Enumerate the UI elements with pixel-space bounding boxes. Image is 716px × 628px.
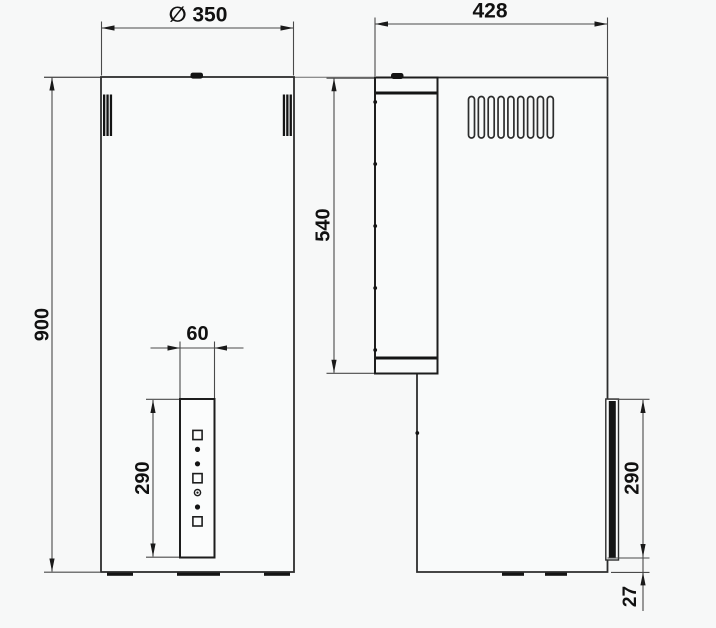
dim-panel-bottom-offset-label: 27 xyxy=(620,586,641,607)
dim-panel-width-label: 60 xyxy=(186,323,208,345)
top-cap-icon xyxy=(191,73,204,79)
side-control-panel xyxy=(606,399,619,560)
dim-side-depth-label: 428 xyxy=(472,0,507,23)
dim-duct-height-label: 540 xyxy=(313,208,335,241)
panel-button-dot-icon xyxy=(195,447,200,452)
panel-button-dot-icon xyxy=(195,461,200,466)
duct-screw-icon xyxy=(373,162,377,166)
mounting-bracket-right-icon xyxy=(283,95,292,137)
mounting-bracket-left-icon xyxy=(103,95,112,137)
dim-panel-bottom-offset: 27 xyxy=(611,557,650,611)
front-foot-pads xyxy=(107,573,290,576)
duct-top-cap-icon xyxy=(391,73,404,79)
panel-button-ring-center-icon xyxy=(196,492,198,494)
body-screw-icon xyxy=(415,431,419,435)
dim-front-width: ∅ 350 xyxy=(102,4,294,76)
side-foot-pads xyxy=(502,573,567,576)
panel-button-dot-icon xyxy=(195,504,200,509)
dim-front-width-label: ∅ 350 xyxy=(169,4,228,27)
side-view xyxy=(373,73,618,576)
dim-panel-height-side-label: 290 xyxy=(622,461,644,494)
technical-drawing: ∅ 350 900 60 290 xyxy=(0,0,716,628)
duct-screw-icon xyxy=(373,224,377,228)
dim-front-height: 900 xyxy=(32,77,101,572)
dim-duct-height: 540 xyxy=(313,78,375,373)
dim-panel-height-front-label: 290 xyxy=(132,461,154,494)
duct-box xyxy=(375,78,438,374)
duct-screw-icon xyxy=(373,348,377,352)
duct-screw-icon xyxy=(373,100,377,104)
drawing-canvas: ∅ 350 900 60 290 xyxy=(0,0,716,628)
dim-side-depth: 428 xyxy=(375,0,608,76)
control-panel xyxy=(180,399,215,558)
duct-screw-icon xyxy=(373,286,377,290)
dim-front-height-label: 900 xyxy=(32,308,54,341)
